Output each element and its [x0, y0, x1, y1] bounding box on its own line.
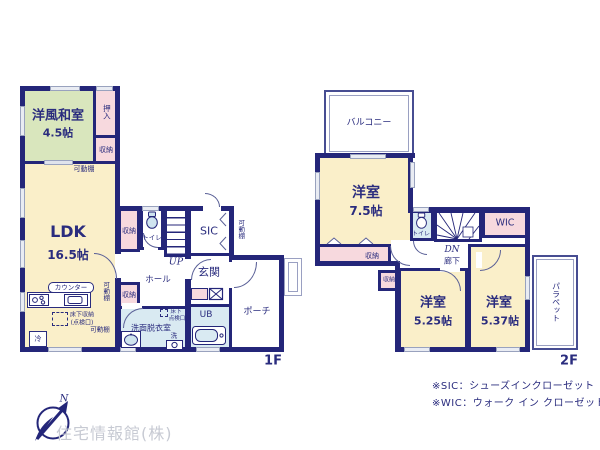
wall-segment — [395, 261, 400, 352]
label-shelf: 可動棚 — [90, 326, 110, 333]
window — [496, 347, 520, 352]
label-closet: 収納 — [365, 252, 379, 260]
window — [96, 86, 113, 91]
label-hatch-2: 点検口 — [169, 316, 186, 322]
label-washitsu-size: 4.5帖 — [43, 128, 74, 141]
floor2-label: 2F — [560, 355, 578, 370]
label-room75: 洋室 — [352, 185, 380, 201]
window — [20, 106, 25, 136]
wall-segment — [115, 86, 120, 213]
label-washitsu: 洋風和室 — [32, 110, 84, 125]
stairs-2f-fan — [437, 213, 479, 239]
kitchen-sink-icon — [64, 294, 88, 306]
door-opening — [410, 248, 416, 264]
label-closet: 収納 — [122, 291, 136, 299]
window — [410, 162, 415, 188]
label-toilet: トイレ — [142, 234, 162, 241]
washing-machine-icon — [166, 340, 183, 350]
label-corridor: 廊下 — [444, 256, 460, 265]
compass-north-label: N — [60, 393, 69, 405]
door-arc-sic-exterior — [205, 193, 220, 207]
genkan-crossbox-icon — [209, 288, 223, 300]
bathtub-icon — [192, 326, 226, 345]
wall-segment — [315, 153, 320, 266]
window — [48, 347, 82, 352]
label-hatch-1: 床下 — [170, 309, 181, 315]
entrance-step-inner — [288, 262, 298, 292]
floor1-label: 1F — [264, 355, 282, 370]
label-parapet: パラペット — [551, 282, 560, 322]
toilet-icon — [415, 212, 428, 229]
label-shelf: 可動棚 — [236, 219, 243, 239]
wall-segment — [229, 255, 284, 260]
label-dn: DN — [444, 245, 459, 255]
label-porch: ポーチ — [243, 307, 270, 317]
label-sic: SIC — [200, 226, 218, 239]
closet-door-chevron — [358, 237, 374, 245]
label-ldk-size: 16.5帖 — [47, 249, 89, 263]
genkan-mat — [191, 288, 208, 300]
label-ub: UB — [200, 310, 213, 320]
closet-door-chevron — [326, 237, 342, 245]
window — [525, 276, 530, 300]
label-closet: 収納 — [122, 227, 136, 235]
window — [315, 172, 320, 200]
label-oshiire: 押入 — [102, 105, 111, 120]
label-genkan: 玄関 — [198, 267, 220, 280]
wall-segment — [315, 261, 395, 266]
window — [50, 86, 80, 91]
label-counter: カウンター — [55, 284, 88, 291]
wall-segment — [229, 206, 234, 260]
window — [196, 347, 220, 352]
label-ldk: LDK — [50, 223, 86, 241]
washbasin-icon — [121, 331, 141, 348]
window — [20, 240, 25, 268]
label-room537: 洋室 — [486, 297, 512, 312]
company-name: 住宅情報館(株) — [56, 420, 173, 444]
note-wic: ※WIC：ウォーク イン クローゼット — [432, 394, 600, 409]
label-room525: 洋室 — [420, 297, 446, 312]
floor-hatch-box — [160, 309, 168, 317]
closet-door-chevron — [219, 212, 227, 227]
window — [404, 347, 430, 352]
stove-icon — [29, 294, 49, 306]
label-room537-size: 5.37帖 — [481, 316, 519, 329]
label-balcony: バルコニー — [347, 118, 392, 128]
label-shelf: 可動棚 — [74, 165, 95, 173]
note-sic: ※SIC：シューズインクローゼット — [432, 377, 595, 392]
label-room525-size: 5.25帖 — [414, 316, 452, 329]
underfloor-storage-box — [52, 312, 68, 326]
sliding-door — [44, 160, 73, 165]
label-fridge: 冷 — [35, 335, 42, 343]
label-underfloor-storage: 床下収納 — [70, 313, 94, 320]
label-hall: ホール — [145, 276, 171, 286]
label-shelf: 可動棚 — [101, 281, 108, 301]
label-closet: 収納 — [383, 278, 395, 285]
label-up: UP — [169, 258, 183, 269]
window — [20, 292, 25, 312]
stairs-1f — [164, 208, 188, 257]
label-room75-size: 7.5帖 — [349, 205, 382, 219]
label-washer: 洗 — [171, 332, 178, 339]
closet-door-chevron — [219, 236, 227, 251]
label-closet: 収納 — [99, 146, 113, 154]
label-senmen: 洗面脱衣室 — [131, 323, 171, 332]
window — [350, 154, 386, 159]
label-wic: WIC — [496, 219, 515, 230]
window — [20, 188, 25, 218]
label-toilet: トイレ — [412, 232, 430, 239]
floorplan-canvas: 洋風和室 4.5帖 押入 収納 可動棚 LDK 16.5帖 カウンター 床下収納… — [0, 0, 600, 450]
toilet-icon — [145, 211, 159, 229]
